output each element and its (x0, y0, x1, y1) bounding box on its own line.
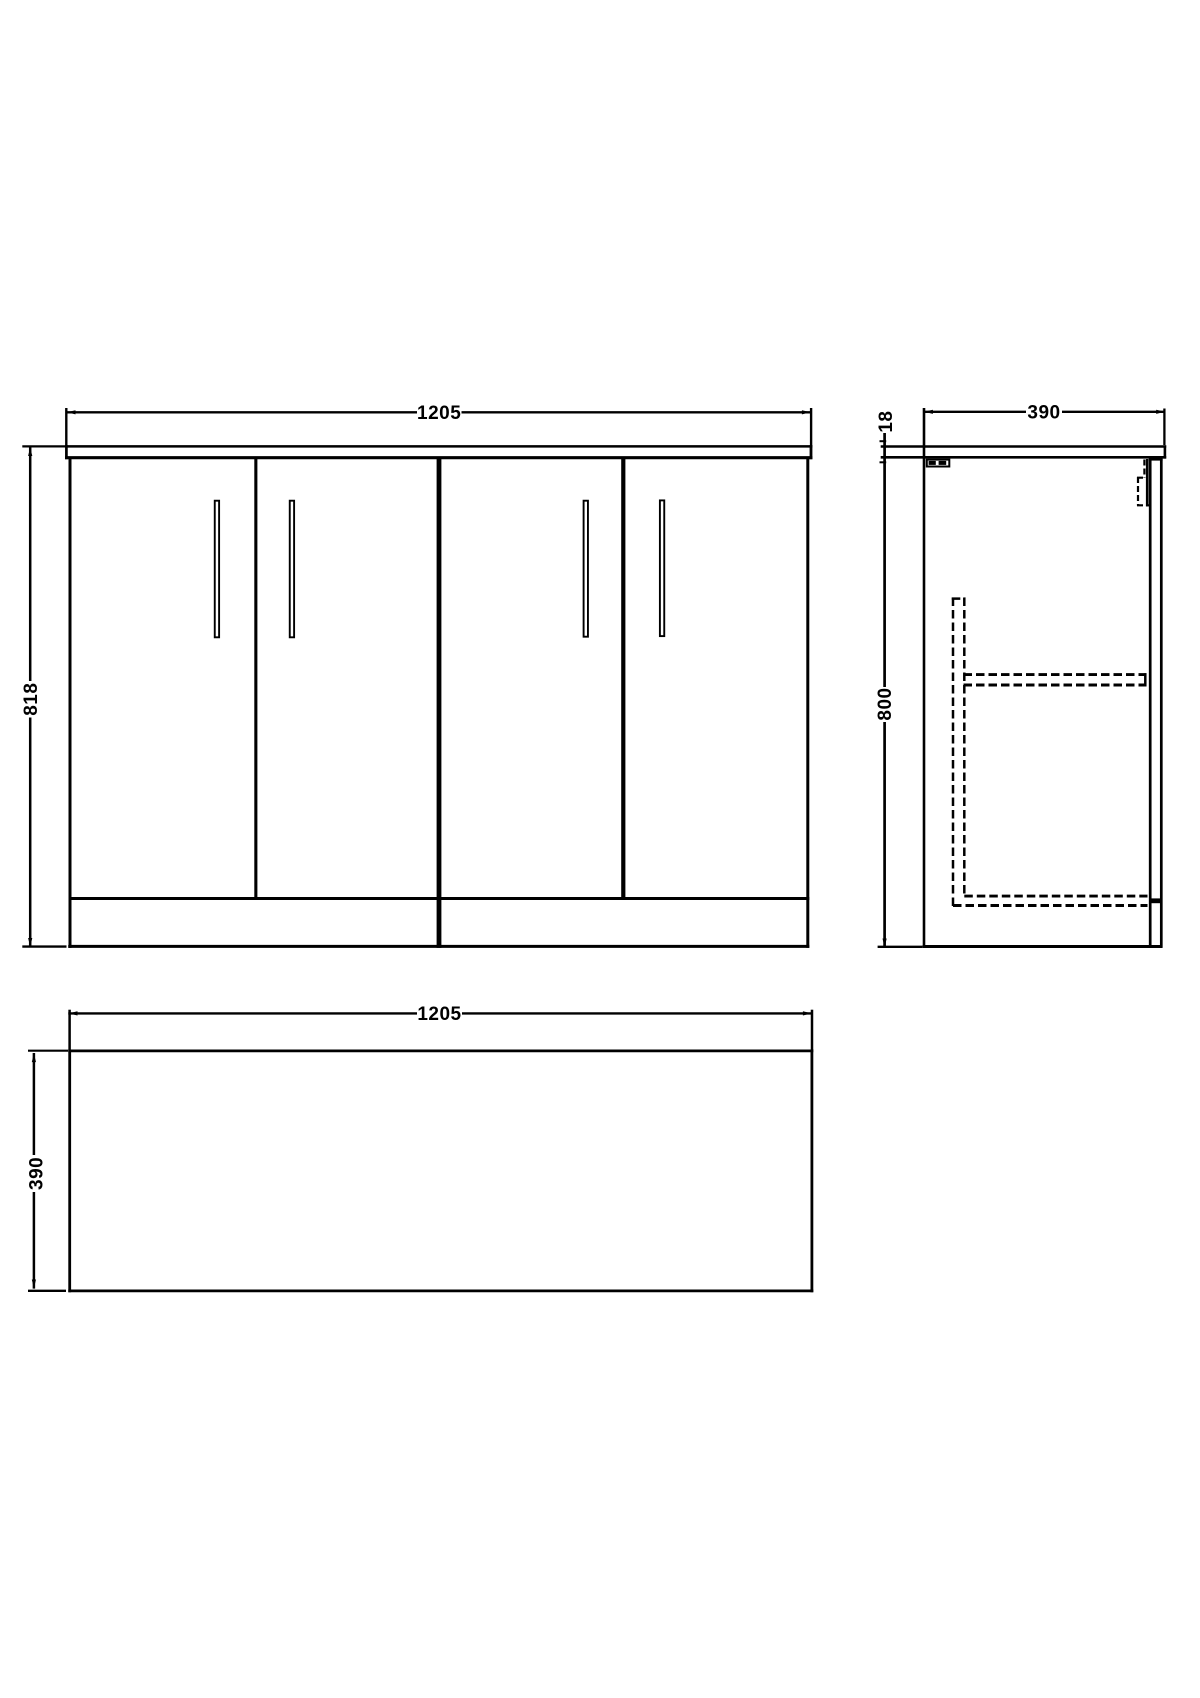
svg-text:800: 800 (875, 687, 896, 720)
svg-text:390: 390 (26, 1157, 47, 1190)
svg-text:818: 818 (21, 683, 42, 716)
svg-text:390: 390 (1027, 403, 1060, 424)
svg-text:1205: 1205 (417, 403, 461, 424)
svg-text:1205: 1205 (417, 1004, 461, 1025)
svg-text:18: 18 (876, 411, 897, 433)
